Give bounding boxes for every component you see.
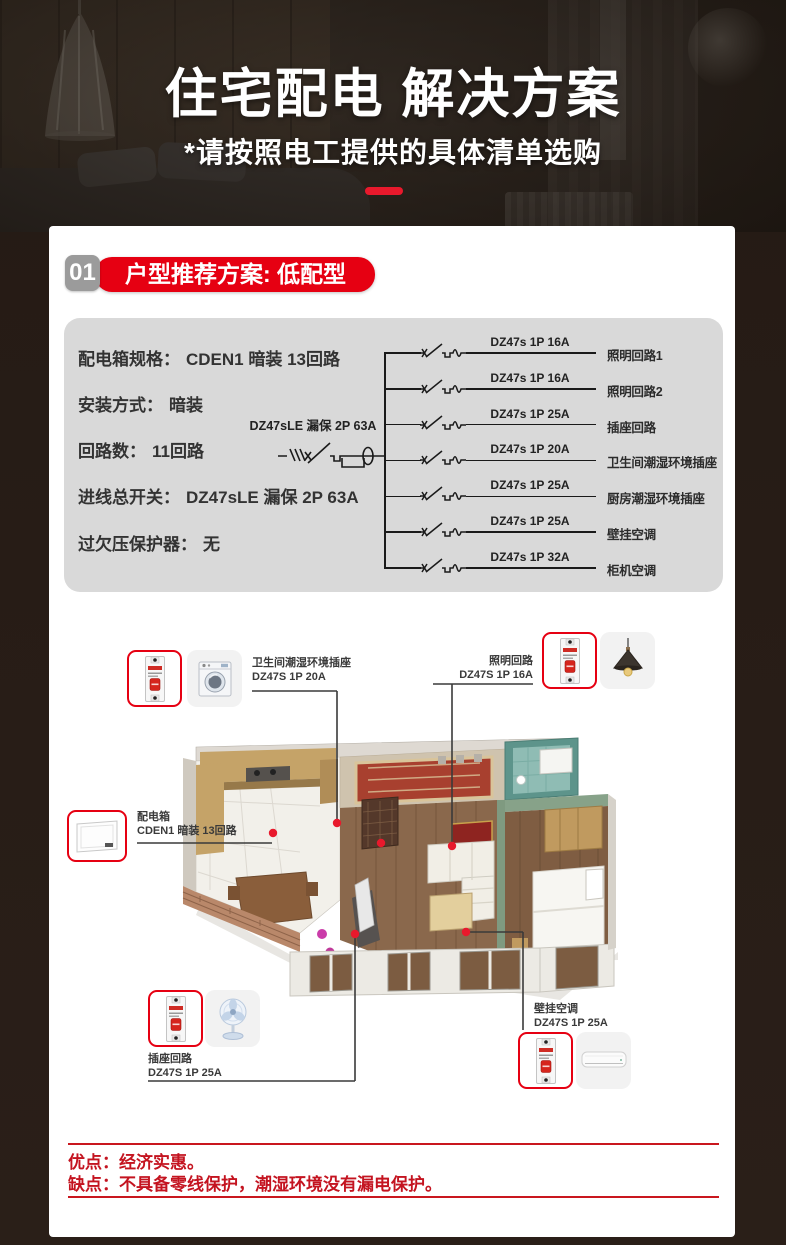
branch-line: [466, 388, 596, 390]
breaker-product-box: [127, 650, 182, 707]
living-room-area: [317, 797, 497, 970]
branch-row: DZ47s 1P 32A 柜机空调: [64, 555, 723, 581]
circuit-breaker-icon: [536, 1038, 556, 1084]
section-title-pill: 户型推荐方案: 低配型: [95, 257, 375, 292]
appliance-box: [187, 650, 242, 707]
branch-row: DZ47s 1P 25A 厨房潮湿环境插座: [64, 483, 723, 509]
callout-distribution-box: 配电箱 CDEN1 暗装 13回路: [137, 810, 237, 838]
breaker-product-box: [542, 632, 597, 689]
section-number-badge: 01: [65, 255, 100, 291]
callout-title: 卫生间潮湿环境插座: [252, 656, 351, 670]
callout-title: 配电箱: [137, 810, 237, 824]
branch-breaker-label: DZ47s 1P 25A: [450, 478, 610, 492]
branch-stub-line: [384, 388, 421, 390]
callout-title: 壁挂空调: [534, 1002, 608, 1016]
fan-icon: [213, 996, 253, 1042]
branch-line: [466, 531, 596, 533]
branch-breaker-label: DZ47s 1P 20A: [450, 442, 610, 456]
branch-row: DZ47s 1P 20A 卫生间潮湿环境插座: [64, 447, 723, 473]
branch-breaker-label: DZ47s 1P 16A: [450, 371, 610, 385]
branch-circuit-name: 卫生间潮湿环境插座: [607, 452, 721, 471]
branch-circuit-name: 插座回路: [607, 417, 721, 436]
branch-breaker-label: DZ47s 1P 25A: [450, 514, 610, 528]
branch-stub-line: [384, 496, 421, 498]
pendant-lamp-icon: [608, 638, 648, 684]
branch-line: [466, 352, 596, 354]
distribution-box-icon: [75, 819, 119, 853]
callout-model: DZ47S 1P 25A: [534, 1016, 608, 1030]
branch-circuit-name: 柜机空调: [607, 560, 721, 579]
red-divider-dash: [365, 187, 403, 195]
breaker-product-box: [518, 1032, 573, 1089]
air-conditioner-icon: [581, 1050, 627, 1072]
hallway-area: [340, 749, 505, 808]
branch-breaker-label: DZ47s 1P 16A: [450, 335, 610, 349]
branch-stub-line: [384, 352, 421, 354]
branch-circuit-name: 壁挂空调: [607, 524, 721, 543]
appliance-box: [205, 990, 260, 1047]
hero-banner: 住宅配电 解决方案 *请按照电工提供的具体清单选购: [0, 0, 786, 232]
branch-stub-line: [384, 460, 421, 462]
callout-model: DZ47S 1P 20A: [252, 670, 351, 684]
branch-stub-line: [384, 424, 421, 426]
breaker-product-box: [148, 990, 203, 1047]
branch-row: DZ47s 1P 16A 照明回路2: [64, 376, 723, 402]
footer-rule-top: [68, 1143, 719, 1145]
appliance-box: [576, 1032, 631, 1089]
callout-model: CDEN1 暗装 13回路: [137, 824, 237, 838]
callout-wall-ac: 壁挂空调 DZ47S 1P 25A: [534, 1002, 608, 1030]
branch-breaker-label: DZ47s 1P 32A: [450, 550, 610, 564]
circuit-breaker-icon: [560, 638, 580, 684]
footer-rule-bottom: [68, 1196, 719, 1198]
callout-lighting: 照明回路 DZ47S 1P 16A: [433, 654, 533, 682]
washing-machine-icon: [195, 659, 235, 699]
branch-line: [466, 424, 596, 426]
branch-line: [466, 496, 596, 498]
bathroom-area: [505, 738, 578, 800]
branch-breaker-label: DZ47s 1P 25A: [450, 407, 610, 421]
branch-row: DZ47s 1P 25A 壁挂空调: [64, 519, 723, 545]
branch-line: [466, 460, 596, 462]
callout-bathroom-socket: 卫生间潮湿环境插座 DZ47S 1P 20A: [252, 656, 351, 684]
callout-socket: 插座回路 DZ47S 1P 25A: [148, 1052, 222, 1080]
hero-subtitle: *请按照电工提供的具体清单选购: [0, 131, 786, 171]
page: 住宅配电 解决方案 *请按照电工提供的具体清单选购 户型推荐方案: 低配型 01…: [0, 0, 786, 1245]
circuit-breaker-icon: [166, 996, 186, 1042]
distribution-product-box: [67, 810, 127, 862]
branch-circuit-name: 照明回路1: [607, 345, 721, 364]
branch-row: DZ47s 1P 25A 插座回路: [64, 412, 723, 438]
branch-stub-line: [384, 531, 421, 533]
branch-row: DZ47s 1P 16A 照明回路1: [64, 340, 723, 366]
kitchen-area: [183, 748, 340, 952]
circuit-breaker-icon: [145, 656, 165, 702]
callout-model: DZ47S 1P 25A: [148, 1066, 222, 1080]
hero-title: 住宅配电 解决方案: [0, 52, 786, 128]
spec-wiring-panel: 配电箱规格：CDEN1 暗装 13回路 安装方式：暗装 回路数：11回路 进线总…: [64, 318, 723, 592]
bedroom-area: [497, 794, 608, 962]
branch-line: [466, 567, 596, 569]
appliance-box: [600, 632, 655, 689]
footer-cons: 缺点：不具备零线保护，潮湿环境没有漏电保护。: [68, 1170, 719, 1195]
callout-model: DZ47S 1P 16A: [433, 668, 533, 682]
branch-circuit-name: 厨房潮湿环境插座: [607, 488, 721, 507]
callout-title: 照明回路: [433, 654, 533, 668]
branch-stub-line: [384, 567, 421, 569]
branch-circuit-name: 照明回路2: [607, 381, 721, 400]
branch-circuits: DZ47s 1P 16A 照明回路1: [64, 340, 723, 581]
callout-title: 插座回路: [148, 1052, 222, 1066]
